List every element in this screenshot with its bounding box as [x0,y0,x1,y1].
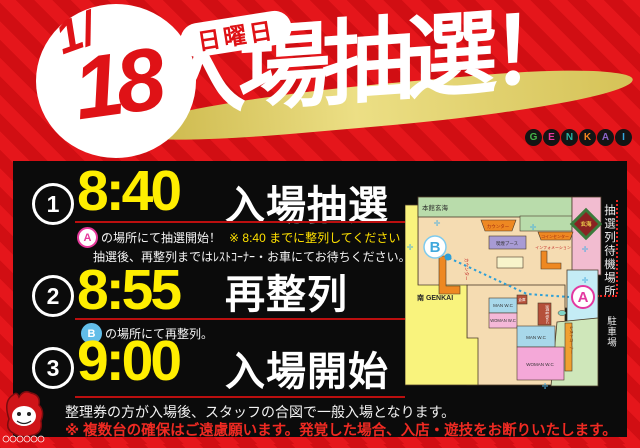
room-counter-left-label: カウンター [463,258,470,281]
room-smoking-booth-label: 喫煙ブース [496,240,519,247]
door-oval-icon [558,311,566,316]
marker-a-badge: A [77,227,98,248]
map-main-building-label: 本館玄海 [422,203,449,212]
map-south-building-label: 南 GENKAI [417,293,453,302]
footer-warning-line: ※ 複数台の確保はご遠慮願います。発覚した場合、入店・遊技をお断りいたします。 [65,419,617,440]
map-marker-a: A [572,286,594,308]
door-marker-icon: ✛ [582,245,589,254]
room-man-wc-lower-label: MAN W.C [526,335,546,340]
logo-letter: E [543,129,560,146]
logo-letter: G [525,129,542,146]
schedule-panel: 1 8:40 入場抽選 A の場所にて抽選開始！ ※ 8:40 までに整列してく… [13,161,627,437]
genkai-emblem-text: 玄海 [580,220,592,228]
room-information-label: インフォメーション [535,245,571,250]
room-rest-corner-label: レストコーナー [569,326,575,354]
step-1-note-text: の場所にて抽選開始！ [101,229,221,246]
logo-letter: I [615,129,632,146]
date-day: 18 [68,35,163,134]
step-number-1-text: 1 [47,191,60,218]
logo-letter: N [561,129,578,146]
parking-label: 駐車場 [603,316,617,348]
step-number-3-text: 3 [47,355,60,382]
logo-letter: A [597,129,614,146]
door-marker-icon: ✛ [530,223,537,232]
step-1-note: A の場所にて抽選開始！ ※ 8:40 までに整列してください [77,227,400,248]
queue-route-dotted-line-vertical [616,200,618,294]
door-marker-icon: ✛ [434,219,441,228]
step-1-time: 8:40 [77,163,179,220]
genkai-mascot-icon [1,389,47,448]
room-woman-wc-lower-label: WOMAN W.C [526,362,554,367]
genkai-brand-logo: G E N K A I [525,129,632,146]
logo-letter: K [579,129,596,146]
step-2-time: 8:55 [77,262,179,319]
room-storage-label: 倉庫 [519,297,527,302]
step-3-time: 9:00 [77,333,179,390]
step-1-label: 入場抽選 [225,186,389,226]
room-accessible-wc-label: 身障者用W.C [545,305,550,324]
divider-line [75,396,405,398]
door-marker-icon: ✛ [582,276,589,285]
map-marker-b-dot [445,254,452,261]
room-counter-top-label: カウンター [487,223,510,230]
divider-line [75,318,405,320]
step-number-2: 2 [32,275,74,317]
floor-map-svg: 玄海 カウンター 喫煙ブース コインセンター インフォメーション カウンター 倉… [405,190,603,397]
waiting-area-label: 抽選列待機場所 [601,204,617,299]
step-3-label: 入場開始 [225,352,389,392]
event-poster: { "poster": { "date": { "month": "1/", "… [0,0,640,444]
floor-map: 玄海 カウンター 喫煙ブース コインセンター インフォメーション カウンター 倉… [405,190,603,397]
map-marker-a-text: A [578,289,589,306]
room-coin-center-label: コインセンター [541,233,569,239]
door-marker-icon: ✛ [407,243,414,252]
map-marker-b-text: B [430,239,441,256]
map-main-building-ext [520,216,572,231]
divider-line [75,221,405,223]
step-number-1: 1 [32,183,74,225]
room-woman-wc-upper-label: WOMAN W.C [490,318,516,323]
step-number-2-text: 2 [47,283,60,310]
step-2-label: 再整列 [225,275,348,315]
door-marker-icon: ✛ [542,382,549,391]
room-bench [497,257,523,268]
room-man-wc-upper-label: MAN W.C [493,303,513,308]
step-number-3: 3 [32,347,74,389]
step-1-note-emphasis: ※ 8:40 までに整列してください [229,229,400,246]
